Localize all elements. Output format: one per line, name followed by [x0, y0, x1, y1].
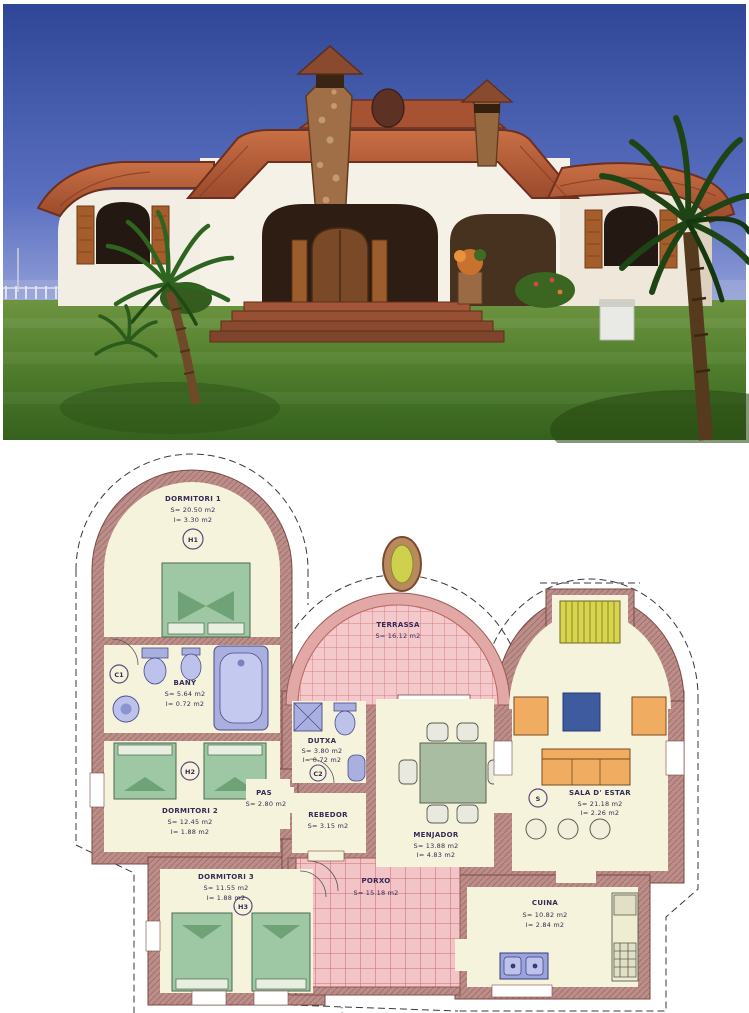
window-gap [192, 991, 226, 1005]
shrub-flower [558, 290, 563, 295]
room-label: BANY [174, 679, 198, 687]
room-label: PORXO [361, 877, 390, 885]
bidet-fixture [181, 654, 201, 680]
door-gap [556, 867, 596, 883]
room-label: DORMITORI 2 [162, 807, 218, 815]
room-light: I= 4.83 m2 [417, 851, 455, 859]
room-light: I= 1.88 m2 [207, 894, 245, 902]
room-area: S= 5.64 m2 [165, 690, 206, 698]
door-shutter-right [372, 240, 387, 304]
room-light: I= 0.72 m2 [166, 700, 204, 708]
flower-pot [458, 272, 482, 304]
window-gap [494, 741, 512, 775]
fridge [614, 895, 636, 915]
sink-drain [511, 964, 516, 969]
left-window-shutter [77, 206, 94, 264]
room-label: PAS [256, 789, 272, 797]
room-label: CUINA [532, 899, 558, 907]
room-area: S= 3.15 m2 [308, 822, 349, 830]
room-tag: H3 [238, 903, 248, 911]
room-area: S= 11.55 m2 [204, 884, 249, 892]
toilet-fixture [335, 711, 355, 735]
bathtub-drain [238, 660, 245, 667]
room-area: S= 13.88 m2 [414, 842, 459, 850]
room-bany: C1 BANY S= 5.64 m2 I= 0.72 m2 [104, 639, 280, 733]
room-label: SALA D' ESTAR [569, 789, 631, 797]
floor-plan-drawing: TERRASSA S= 16.12 m2 PORXO S= 15.18 m2 H… [0, 443, 749, 1013]
mow-streak [3, 352, 746, 364]
room-tag: C1 [114, 671, 124, 679]
room-area: S= 3.80 m2 [302, 747, 343, 755]
room-light: I= 2.26 m2 [581, 809, 619, 817]
window-gap [492, 985, 552, 997]
toilet-tank [334, 703, 356, 711]
room-area: S= 20.50 m2 [171, 506, 216, 514]
pillow [256, 979, 306, 989]
sink-fixture [348, 755, 365, 781]
flowers [454, 250, 466, 262]
room-label: TERRASSA [376, 621, 420, 629]
brochure-page: TERRASSA S= 16.12 m2 PORXO S= 15.18 m2 H… [0, 0, 749, 1013]
villa-photo [0, 0, 749, 443]
villa-photo-illustration [0, 0, 749, 443]
room-light: I= 0.72 m2 [303, 756, 341, 764]
sofa [542, 749, 630, 785]
flower-greens [474, 249, 486, 261]
room-tag: H1 [188, 536, 198, 544]
entrance-steps [210, 302, 504, 342]
pillow [168, 623, 204, 634]
second-chimney-vent [474, 104, 500, 113]
right-window-shutter [585, 210, 602, 268]
porch-wall-bottom [296, 987, 460, 995]
entry-door-gap [308, 851, 344, 861]
satellite-dish [372, 89, 404, 127]
room-tag: C2 [313, 770, 322, 778]
room-area: S= 16.12 m2 [376, 632, 421, 640]
window-gap [90, 773, 104, 807]
door-gap [455, 939, 467, 971]
pillow [118, 745, 172, 755]
room-label: REBEDOR [308, 811, 348, 819]
dining-table [420, 743, 486, 803]
pillow [208, 623, 244, 634]
window-gap [146, 921, 160, 951]
room-light: I= 1.88 m2 [171, 828, 209, 836]
lawn-shadow [60, 382, 280, 434]
pouf-stools [526, 819, 610, 839]
sink-drain [533, 964, 538, 969]
room-label: DUTXA [308, 737, 337, 745]
room-terrassa: TERRASSA S= 16.12 m2 [286, 537, 510, 706]
room-area: S= 15.18 m2 [354, 889, 399, 897]
window-gap [254, 991, 288, 1005]
pillow [176, 979, 228, 989]
room-light: I= 3.30 m2 [174, 516, 212, 524]
room-area: S= 2.80 m2 [246, 800, 287, 808]
shrub-flower [534, 282, 539, 287]
door-shutter-left [292, 240, 307, 304]
armchair [514, 697, 548, 735]
room-dormitori-3: H3 DORMITORI 3 S= 11.55 m2 I= 1.88 m2 [160, 869, 326, 993]
toilet-tank [142, 648, 168, 658]
room-light: I= 2.84 m2 [526, 921, 564, 929]
toilet-fixture [144, 658, 166, 684]
room-area: S= 10.82 m2 [523, 911, 568, 919]
blue-table [563, 693, 600, 731]
shrub-flower [550, 278, 555, 283]
room-label: DORMITORI 3 [198, 873, 254, 881]
pillow [208, 745, 262, 755]
room-area: S= 12.45 m2 [168, 818, 213, 826]
armchair [632, 697, 666, 735]
white-planter-rim [600, 300, 634, 307]
room-tag: H2 [185, 768, 195, 776]
room-porxo: PORXO S= 15.18 m2 [288, 858, 460, 995]
room-label: MENJADOR [413, 831, 458, 839]
room-tag: S [536, 795, 541, 803]
window-gap [666, 741, 684, 775]
room-cuina: CUINA S= 10.82 m2 I= 2.84 m2 [455, 887, 638, 997]
terrace-planter-plants [391, 545, 413, 583]
room-dutxa: DUTXA S= 3.80 m2 I= 0.72 m2 C2 [292, 701, 366, 783]
room-area: S= 21.18 m2 [578, 800, 623, 808]
room-menjador: MENJADOR S= 13.88 m2 I= 4.83 m2 [376, 699, 512, 867]
door-gap [494, 773, 512, 813]
chimney-vent [316, 74, 344, 88]
sink-basin [121, 704, 132, 715]
shrub [515, 272, 575, 308]
floor-plan: TERRASSA S= 16.12 m2 PORXO S= 15.18 m2 H… [0, 443, 749, 1013]
room-label: DORMITORI 1 [165, 495, 221, 503]
stove [614, 943, 636, 977]
room-pas: PAS S= 2.80 m2 [246, 779, 294, 829]
